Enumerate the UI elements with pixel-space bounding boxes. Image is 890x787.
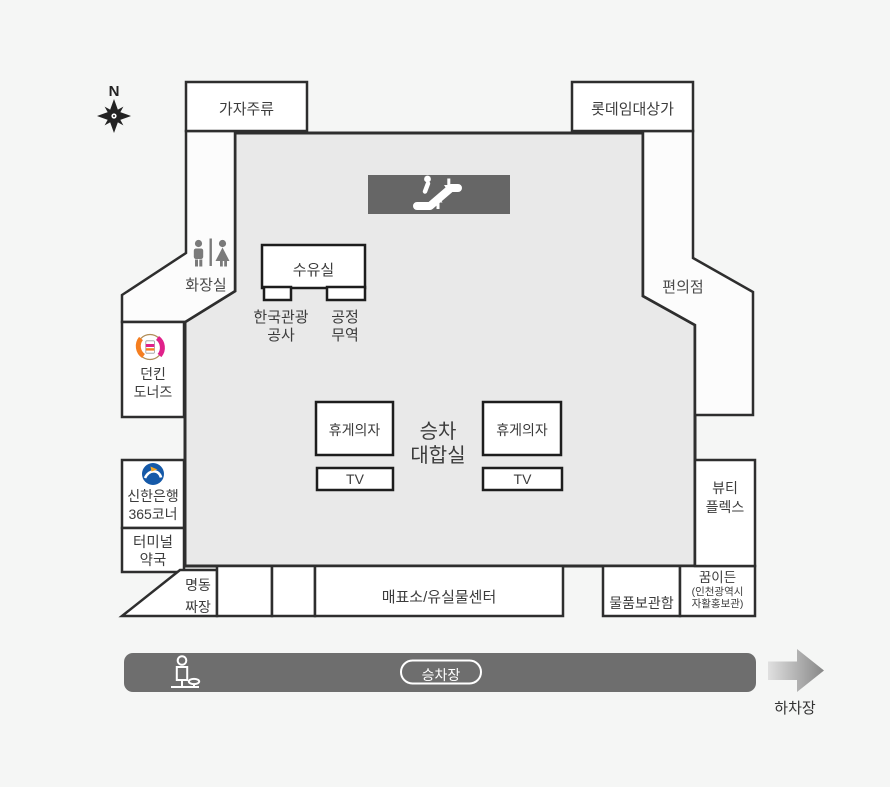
escalator-icon (368, 175, 510, 214)
floor-map-canvas (0, 0, 890, 787)
shinhan-bank-logo (142, 463, 164, 485)
arrow-right-icon (768, 649, 824, 692)
fair-trade-booth (327, 287, 365, 300)
empty-room-2 (272, 566, 315, 616)
gaja-liquor-room (186, 82, 307, 131)
tv-left-box (317, 468, 393, 490)
nursing-room (262, 245, 365, 288)
tv-right-box (483, 468, 562, 490)
lockers-room (603, 566, 680, 616)
lotte-rental-room (572, 82, 693, 131)
beauty-plex-room (695, 460, 755, 566)
korea-tourism-booth (264, 287, 291, 300)
pharmacy-room (122, 528, 184, 572)
empty-room-1 (217, 566, 272, 616)
rest-chairs-left-box (316, 402, 393, 455)
compass-rose-icon (97, 99, 131, 133)
boarding-pill (401, 661, 481, 684)
restroom-corridor (122, 131, 235, 322)
myeongdong-room (122, 570, 217, 616)
rest-chairs-right-box (483, 402, 561, 455)
ticket-office-room (315, 566, 563, 616)
kkumideun-room (680, 566, 755, 616)
terminal-floor-map: N 가자주류 롯데임대상가 화장실 수유실 한국관광 공사 공정 무역 편의점 … (0, 0, 890, 787)
dunkin-donuts-logo (138, 335, 163, 360)
